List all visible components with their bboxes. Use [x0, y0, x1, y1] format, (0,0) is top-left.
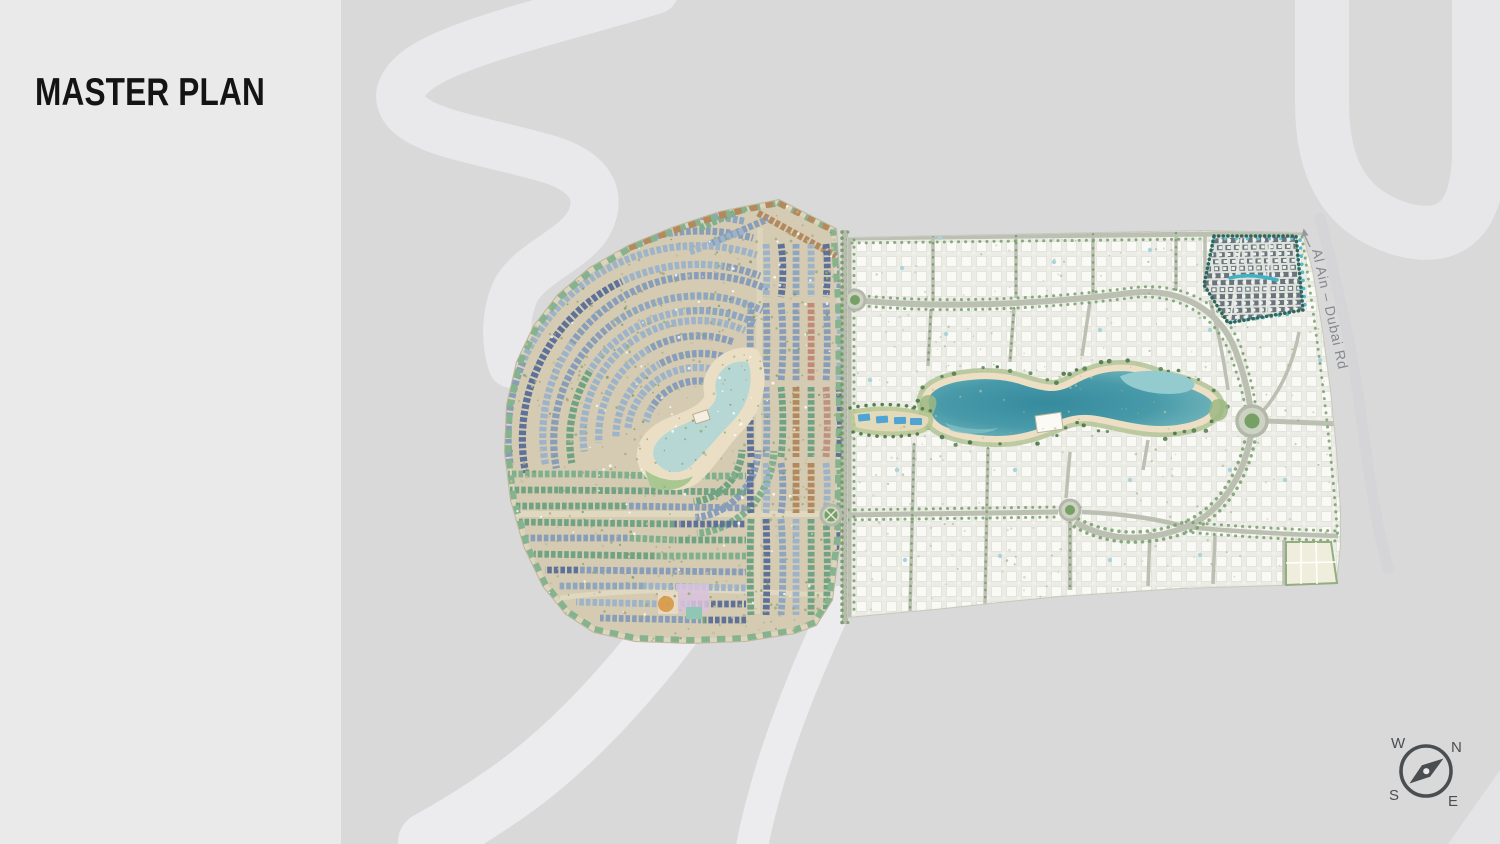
svg-text:N: N	[1451, 739, 1462, 756]
svg-text:W: W	[1391, 735, 1406, 752]
svg-text:S: S	[1389, 787, 1399, 804]
svg-text:E: E	[1448, 793, 1458, 810]
